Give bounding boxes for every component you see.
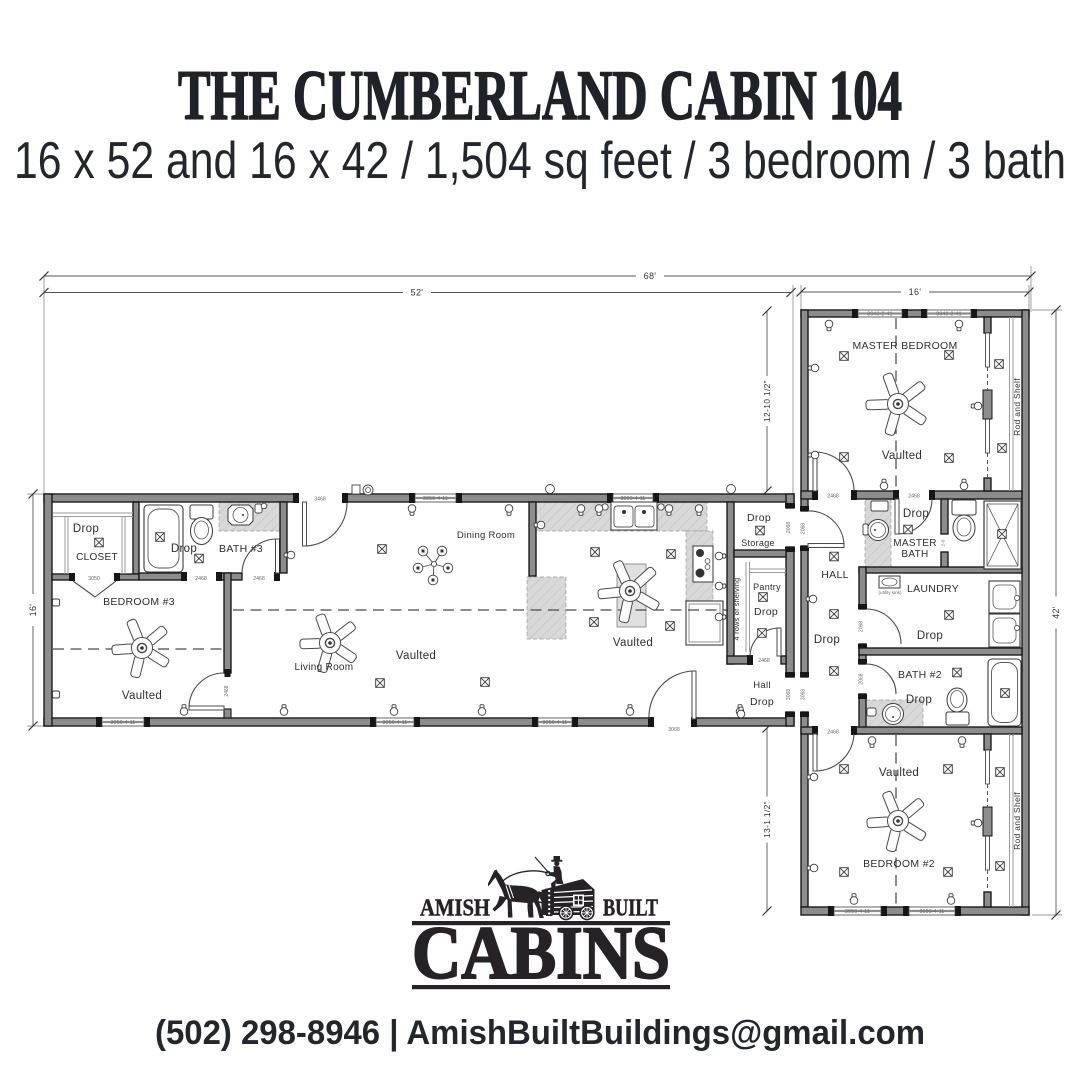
svg-text:13-1 1/2": 13-1 1/2": [762, 801, 772, 838]
svg-text:2468: 2468: [253, 576, 265, 582]
svg-text:2468: 2468: [758, 658, 770, 664]
svg-text:Vaulted: Vaulted: [613, 637, 653, 649]
svg-text:3050-4-11: 3050-4-11: [845, 909, 870, 915]
svg-text:Vaulted: Vaulted: [879, 767, 919, 779]
svg-text:Drop: Drop: [906, 694, 932, 706]
svg-text:68': 68': [644, 271, 657, 281]
svg-text:(utility sink): (utility sink): [879, 590, 902, 595]
svg-text:3040-2-41: 3040-2-41: [936, 311, 961, 317]
svg-text:2468: 2468: [908, 494, 920, 500]
svg-text:3050-4-11: 3050-4-11: [110, 720, 135, 726]
svg-text:3050-4-11: 3050-4-11: [423, 496, 448, 502]
svg-text:3050: 3050: [88, 576, 100, 582]
svg-text:Rod and Shelf: Rod and Shelf: [1012, 792, 1022, 850]
svg-text:16': 16': [909, 287, 922, 297]
svg-text:(502) 298-8946 | AmishBuiltBui: (502) 298-8946 | AmishBuiltBuildings@gma…: [155, 1014, 925, 1052]
svg-text:16': 16': [28, 604, 38, 617]
svg-text:MASTER BEDROOM: MASTER BEDROOM: [852, 340, 957, 352]
svg-text:3050-4-11: 3050-4-11: [542, 720, 567, 726]
svg-text:Pantry: Pantry: [753, 582, 781, 592]
svg-text:Drop: Drop: [754, 606, 778, 618]
svg-text:BATH #3: BATH #3: [219, 543, 263, 555]
svg-text:3468: 3468: [314, 497, 326, 503]
svg-text:4 rows of shelving: 4 rows of shelving: [732, 578, 741, 641]
svg-text:52': 52': [411, 288, 424, 298]
svg-text:3050-4-11: 3050-4-11: [382, 720, 407, 726]
svg-text:3050-4-11: 3050-4-11: [620, 496, 645, 502]
svg-text:2068: 2068: [859, 621, 865, 632]
svg-text:BATH: BATH: [901, 549, 928, 560]
svg-text:Drop: Drop: [747, 512, 771, 524]
svg-text:Dining Room: Dining Room: [457, 530, 515, 541]
svg-text:3040-2-41: 3040-2-41: [867, 311, 892, 317]
svg-text:2068: 2068: [786, 522, 792, 533]
svg-text:Living Room: Living Room: [295, 662, 354, 673]
svg-text:3068: 3068: [801, 689, 807, 700]
svg-text:2-0: 2-0: [941, 539, 947, 546]
svg-text:2068: 2068: [859, 673, 865, 684]
svg-text:CLOSET: CLOSET: [76, 552, 118, 563]
svg-text:3050-4-11: 3050-4-11: [919, 909, 944, 915]
svg-text:Vaulted: Vaulted: [122, 690, 162, 702]
svg-text:12-10 1/2": 12-10 1/2": [762, 380, 772, 422]
svg-text:Drop: Drop: [750, 696, 774, 708]
svg-text:HALL: HALL: [821, 569, 848, 581]
svg-text:Drop: Drop: [73, 523, 99, 535]
svg-text:2068: 2068: [801, 523, 807, 534]
svg-text:3068: 3068: [668, 727, 680, 733]
svg-text:Drop: Drop: [171, 543, 197, 555]
svg-text:2468: 2468: [224, 685, 230, 696]
svg-text:2468: 2468: [827, 494, 839, 500]
svg-text:42': 42': [1051, 606, 1061, 619]
svg-text:2468: 2468: [195, 576, 207, 582]
svg-text:LAUNDRY: LAUNDRY: [907, 583, 959, 595]
svg-text:Vaulted: Vaulted: [396, 650, 436, 662]
svg-text:MASTER: MASTER: [893, 538, 936, 549]
svg-text:2468: 2468: [827, 730, 839, 736]
svg-text:Hall: Hall: [753, 680, 771, 691]
svg-text:Drop: Drop: [903, 508, 929, 520]
svg-text:Drop: Drop: [814, 634, 840, 646]
svg-text:Storage: Storage: [741, 538, 775, 548]
svg-text:3068: 3068: [786, 689, 792, 700]
svg-text:BEDROOM #2: BEDROOM #2: [863, 858, 935, 870]
svg-text:Drop: Drop: [917, 630, 943, 642]
svg-text:BEDROOM #3: BEDROOM #3: [103, 596, 175, 608]
svg-text:Vaulted: Vaulted: [882, 450, 922, 462]
svg-text:BATH #2: BATH #2: [898, 669, 942, 681]
svg-text:CABINS: CABINS: [412, 912, 670, 995]
svg-text:Rod and Shelf: Rod and Shelf: [1012, 378, 1022, 436]
